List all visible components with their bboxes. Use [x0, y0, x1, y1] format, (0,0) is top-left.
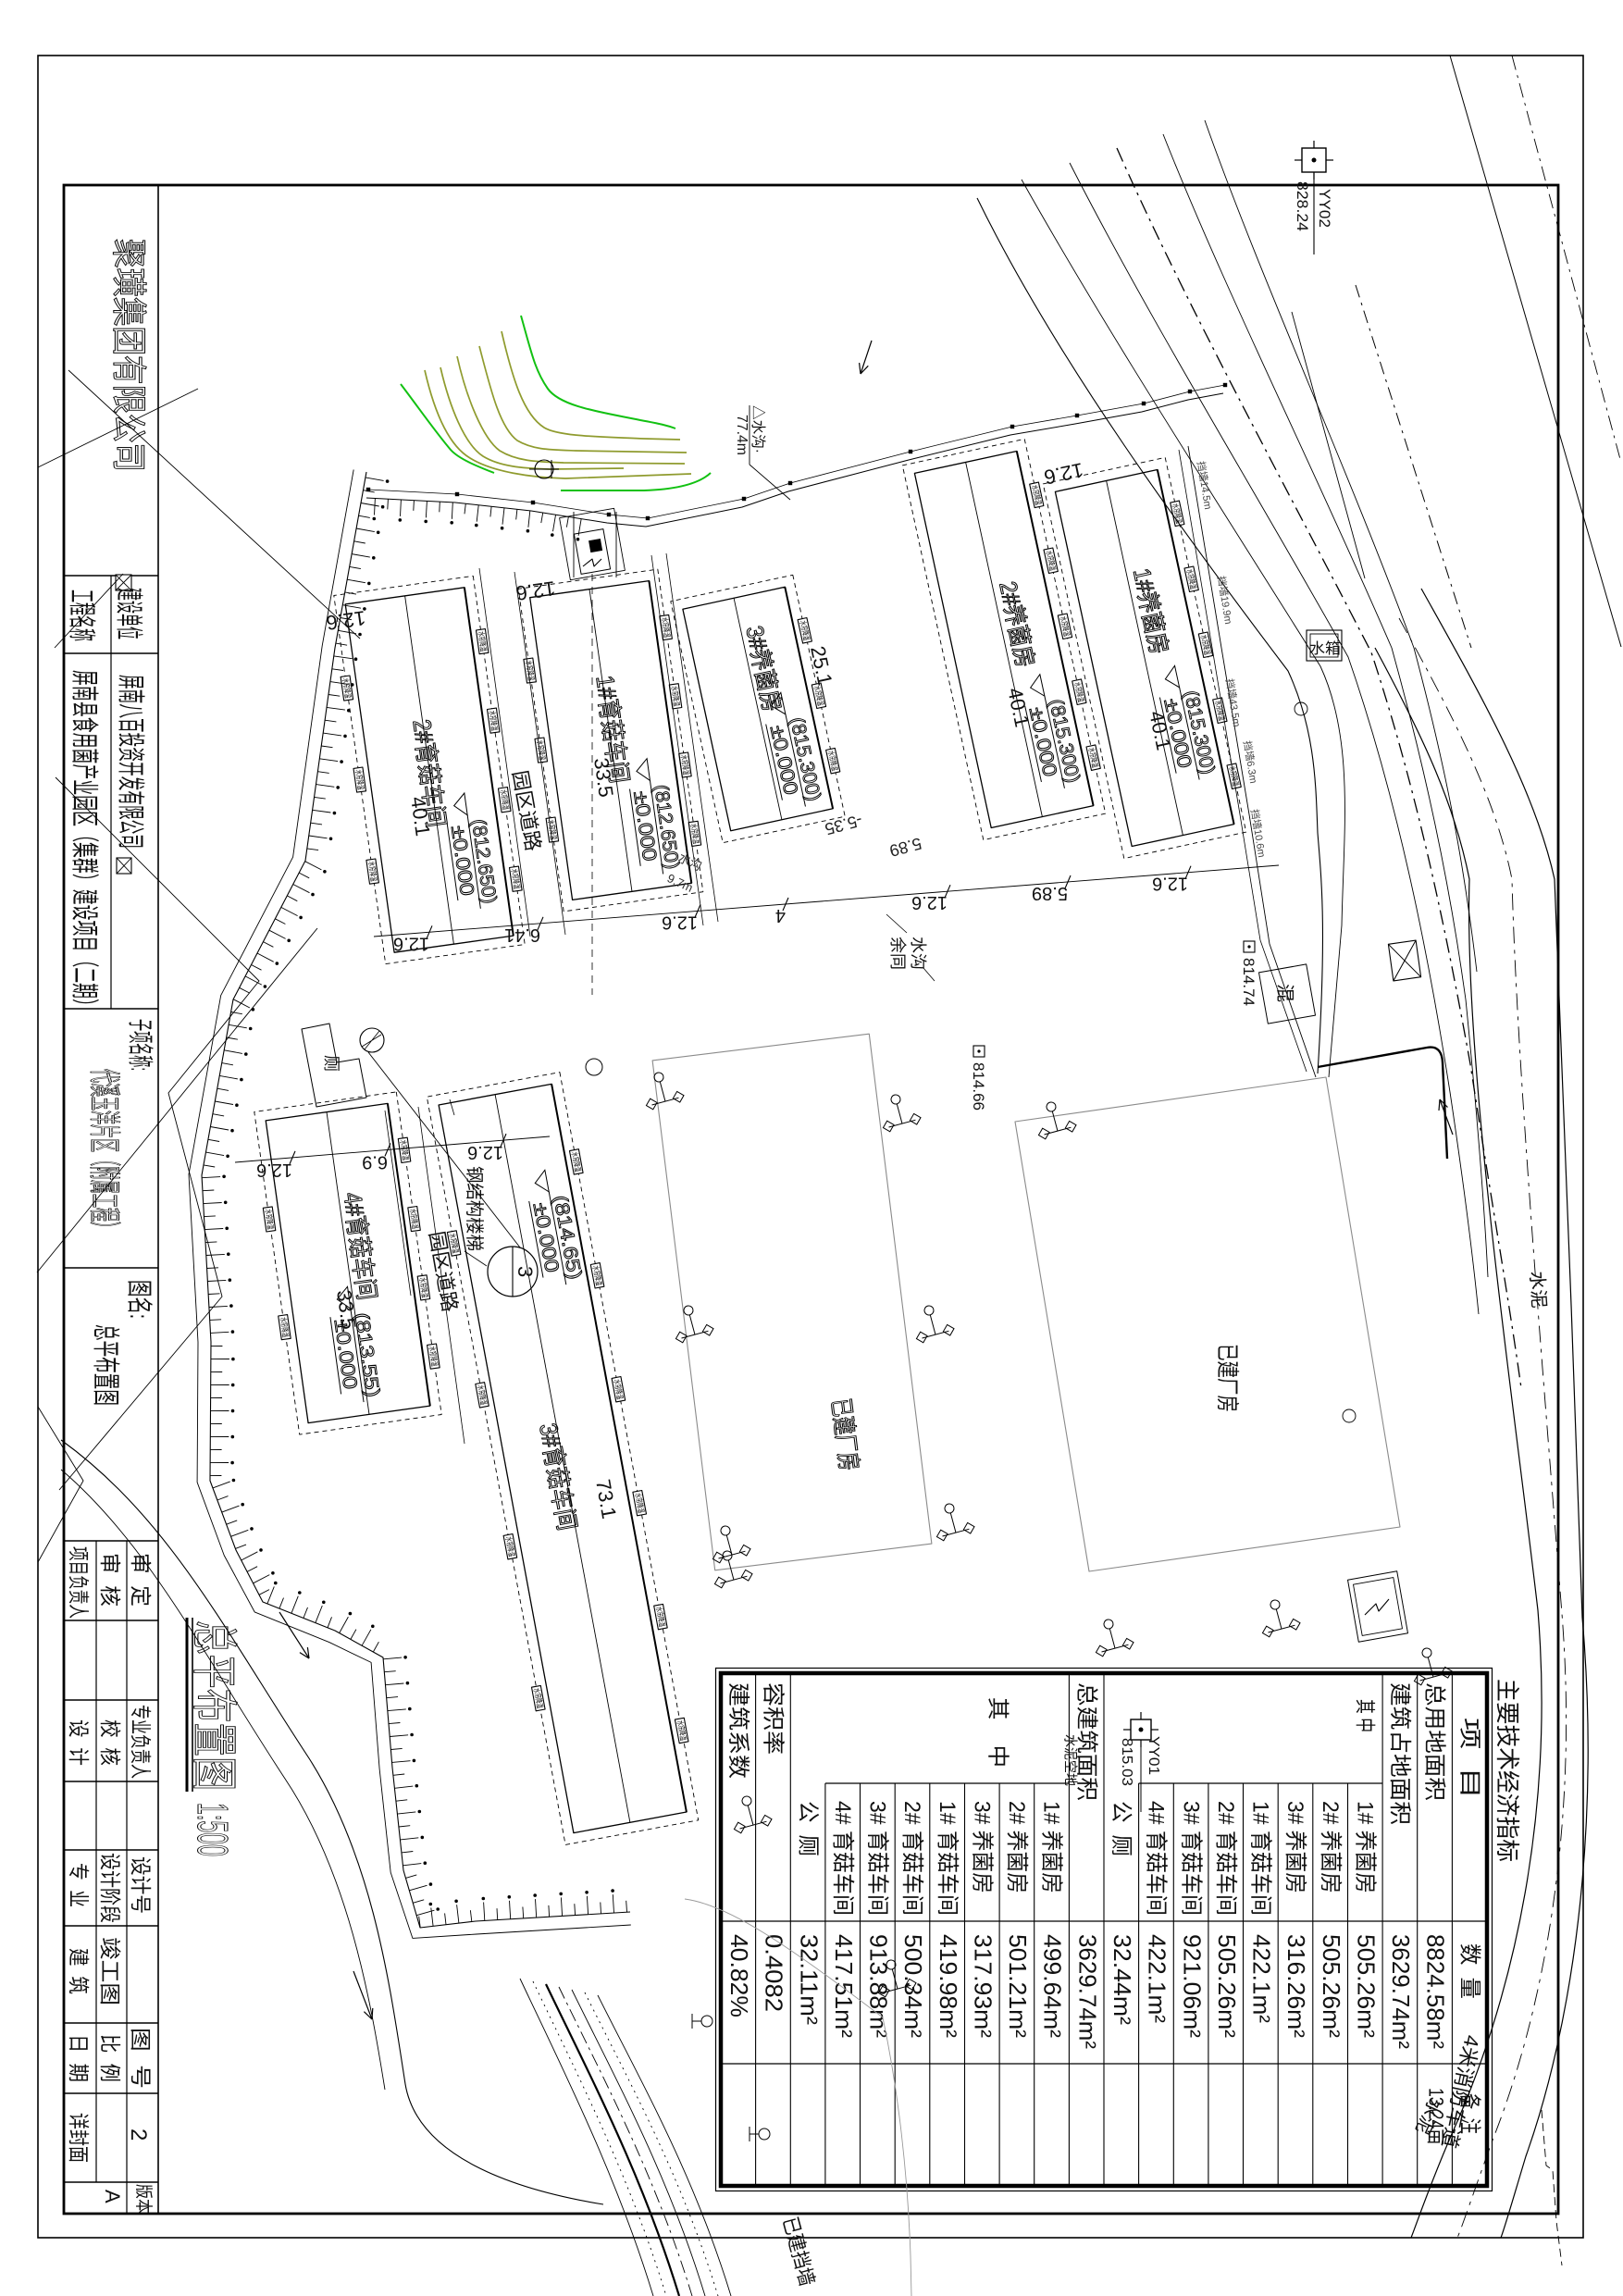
svg-text:水泥空地: 水泥空地	[1062, 1734, 1078, 1786]
svg-text:水帘降温: 水帘降温	[504, 1536, 517, 1558]
svg-text:挡墙19.9m: 挡墙19.9m	[1215, 575, 1235, 625]
svg-text:水帘降温: 水帘降温	[535, 739, 547, 761]
svg-text:水帘降温: 水帘降温	[418, 1277, 430, 1298]
svg-text:815.03: 815.03	[1119, 1738, 1134, 1786]
svg-text:73.1: 73.1	[591, 1478, 621, 1521]
svg-text:3#育菇车间: 3#育菇车间	[534, 1421, 581, 1533]
svg-text:水箱: 水箱	[1309, 640, 1341, 657]
svg-text:40.1: 40.1	[406, 795, 435, 838]
svg-text:水帘降温: 水帘降温	[1227, 765, 1240, 788]
svg-text:项 目: 项 目	[1456, 1718, 1481, 1799]
svg-text:814.74: 814.74	[1240, 958, 1258, 1006]
svg-text:屏南八百投资开发有限公司: 屏南八百投资开发有限公司	[115, 675, 145, 849]
svg-text:500.34m²: 500.34m²	[899, 1934, 927, 2038]
svg-text:-5.35: -5.35	[823, 811, 864, 838]
svg-text:水帘降温: 水帘降温	[826, 750, 839, 772]
svg-text:33.5: 33.5	[589, 756, 618, 799]
svg-text:12.6: 12.6	[393, 933, 429, 953]
svg-text:水泥: 水泥	[1526, 1271, 1550, 1309]
svg-text:设 计: 设 计	[67, 1719, 91, 1766]
svg-text:水帘降温: 水帘降温	[633, 1492, 646, 1514]
svg-text:总平布置图: 总平布置图	[90, 1324, 120, 1406]
svg-text:1:500: 1:500	[189, 1803, 237, 1856]
svg-text:1# 养菌房: 1# 养菌房	[1353, 1801, 1378, 1893]
svg-text:505.26m²: 505.26m²	[1353, 1934, 1381, 2038]
svg-text:水帘降温: 水帘降温	[546, 819, 558, 840]
svg-text:422.1m²: 422.1m²	[1144, 1934, 1171, 2023]
svg-text:工程名称: 工程名称	[66, 590, 96, 641]
svg-text:园区道路: 园区道路	[508, 769, 545, 853]
svg-text:3# 育菇车间: 3# 育菇车间	[865, 1801, 890, 1916]
svg-text:1# 育菇车间: 1# 育菇车间	[935, 1801, 960, 1916]
svg-text:501.21m²: 501.21m²	[1004, 1934, 1032, 2038]
svg-text:图 号: 图 号	[129, 2028, 153, 2089]
svg-text:设计阶段: 设计阶段	[98, 1853, 122, 1923]
svg-text:竣工图: 竣工图	[98, 1937, 122, 2005]
svg-text:水帘降温: 水帘降温	[1030, 484, 1043, 506]
svg-text:水帘降温: 水帘降温	[399, 1139, 411, 1160]
svg-text:比 例: 比 例	[98, 2034, 122, 2082]
svg-text:2# 养菌房: 2# 养菌房	[1318, 1801, 1343, 1893]
svg-text:12.6: 12.6	[514, 577, 557, 605]
svg-text:审 核: 审 核	[98, 1553, 122, 1607]
svg-text:3: 3	[514, 1266, 537, 1277]
svg-text:公 厕: 公 厕	[795, 1801, 820, 1856]
svg-text:32.11m²: 32.11m²	[795, 1934, 823, 2025]
svg-text:建 筑: 建 筑	[67, 1948, 91, 1994]
svg-text:40.1: 40.1	[1003, 686, 1034, 729]
svg-text:水帘降温: 水帘降温	[675, 1719, 688, 1742]
svg-text:水帘降温: 水帘降温	[408, 1208, 420, 1229]
svg-text:水帘降温: 水帘降温	[612, 1379, 625, 1401]
svg-text:12.6: 12.6	[467, 1142, 503, 1162]
svg-text:屏南县食用菌产业园区（集群）建设项目（二期）: 屏南县食用菌产业园区（集群）建设项目（二期）	[68, 670, 99, 1014]
svg-text:专业负责人: 专业负责人	[129, 1705, 153, 1779]
svg-text:水帘降温: 水帘降温	[477, 631, 489, 652]
svg-text:水帘降温: 水帘降温	[1044, 550, 1057, 572]
svg-text:828.24: 828.24	[1294, 181, 1311, 231]
svg-text:水帘降温: 水帘降温	[264, 1209, 276, 1230]
svg-text:总用地面积: 总用地面积	[1422, 1682, 1447, 1801]
svg-text:4#育菇车间: 4#育菇车间	[339, 1191, 381, 1302]
svg-text:水帘降温: 水帘降温	[591, 1265, 604, 1287]
svg-text:水帘降温: 水帘降温	[1184, 568, 1197, 590]
svg-text:4# 育菇车间: 4# 育菇车间	[830, 1801, 855, 1916]
svg-text:4: 4	[775, 905, 786, 925]
svg-text:版本: 版本	[133, 2184, 154, 2214]
svg-text:12.6: 12.6	[256, 1160, 292, 1180]
svg-text:40.82%: 40.82%	[725, 1934, 753, 2017]
svg-text:水帘降温: 水帘降温	[524, 660, 536, 681]
svg-text:水帘降温: 水帘降温	[812, 685, 825, 707]
svg-text:25.1: 25.1	[806, 644, 836, 688]
svg-text:主要技术经济指标: 主要技术经济指标	[1493, 1679, 1521, 1862]
svg-text:图名:: 图名:	[125, 1280, 154, 1319]
svg-text:6.41: 6.41	[504, 925, 540, 945]
svg-text:422.1m²: 422.1m²	[1248, 1934, 1276, 2023]
svg-text:12.6: 12.6	[1152, 874, 1188, 894]
svg-text:417.51m²: 417.51m²	[830, 1934, 858, 2038]
svg-text:水帘降温: 水帘降温	[532, 1687, 545, 1709]
svg-text:余同: 余同	[888, 937, 907, 970]
svg-text:其 中: 其 中	[985, 1697, 1010, 1768]
svg-text:其 中: 其 中	[1354, 1699, 1377, 1732]
svg-text:3# 养菌房: 3# 养菌房	[970, 1801, 995, 1893]
svg-text:水帘降温: 水帘降温	[279, 1317, 291, 1338]
svg-text:数 量: 数 量	[1456, 1943, 1481, 1999]
svg-text:厕: 厕	[322, 1055, 341, 1072]
svg-text:77.4m: 77.4m	[734, 415, 750, 455]
svg-text:921.06m²: 921.06m²	[1178, 1934, 1206, 2038]
svg-text:水帘降温: 水帘降温	[510, 868, 522, 889]
svg-text:8824.58m²: 8824.58m²	[1422, 1934, 1450, 2049]
svg-text:316.26m²: 316.26m²	[1282, 1934, 1310, 2038]
svg-text:32.44m²: 32.44m²	[1109, 1934, 1136, 2025]
svg-text:混: 混	[1274, 984, 1295, 1002]
svg-text:1# 养菌房: 1# 养菌房	[1039, 1801, 1064, 1893]
svg-text:水帘降温: 水帘降温	[1213, 700, 1226, 722]
svg-text:505.26m²: 505.26m²	[1213, 1934, 1241, 2038]
svg-text:公 厕: 公 厕	[1109, 1801, 1134, 1856]
svg-text:水帘降温: 水帘降温	[654, 1606, 667, 1628]
svg-text:水帘降温: 水帘降温	[1072, 681, 1085, 703]
svg-text:水帘降温: 水帘降温	[476, 1384, 489, 1407]
svg-text:水帘降温: 水帘降温	[1086, 747, 1099, 769]
svg-text:1# 育菇车间: 1# 育菇车间	[1248, 1801, 1273, 1916]
svg-text:3# 养菌房: 3# 养菌房	[1282, 1801, 1307, 1893]
svg-text:水帘降温: 水帘降温	[353, 769, 365, 790]
svg-text:审 定: 审 定	[129, 1553, 153, 1607]
svg-text:YY01: YY01	[1146, 1736, 1161, 1775]
svg-text:12.6: 12.6	[1042, 458, 1085, 489]
svg-text:2# 育菇车间: 2# 育菇车间	[899, 1801, 924, 1916]
svg-text:A: A	[101, 2190, 124, 2203]
svg-text:已建厂房: 已建厂房	[1214, 1344, 1240, 1412]
svg-text:建筑占地面积: 建筑占地面积	[1387, 1682, 1412, 1825]
svg-text:建设单位: 建设单位	[113, 588, 143, 639]
svg-text:水帘降温: 水帘降温	[799, 620, 811, 642]
svg-text:317.93m²: 317.93m²	[970, 1934, 997, 2038]
svg-text:已建挡墙: 已建挡墙	[778, 2215, 819, 2289]
svg-text:YY02: YY02	[1316, 189, 1333, 228]
svg-text:水帘降温: 水帘降温	[341, 677, 353, 699]
svg-text:水沟: 水沟	[909, 937, 927, 970]
svg-text:913.88m²: 913.88m²	[865, 1934, 893, 2038]
svg-text:2# 养菌房: 2# 养菌房	[1004, 1801, 1029, 1893]
svg-text:2: 2	[126, 2128, 151, 2141]
svg-text:4# 育菇车间: 4# 育菇车间	[1144, 1801, 1169, 1916]
svg-text:详封面: 详封面	[67, 2113, 91, 2163]
svg-text:3629.74m²: 3629.74m²	[1073, 1934, 1101, 2049]
svg-text:505.26m²: 505.26m²	[1318, 1934, 1345, 2038]
svg-text:水帘降温: 水帘降温	[427, 1346, 440, 1367]
svg-text:419.98m²: 419.98m²	[935, 1934, 962, 2038]
svg-text:5.89: 5.89	[887, 834, 923, 860]
svg-text:水帘降温: 水帘降温	[366, 861, 378, 882]
svg-text:3# 育菇车间: 3# 育菇车间	[1178, 1801, 1203, 1916]
svg-text:专 业: 专 业	[67, 1863, 91, 1907]
svg-text:总平布置图: 总平布置图	[188, 1620, 240, 1791]
svg-text:5.89: 5.89	[1032, 883, 1068, 903]
svg-text:挡墙6.3m: 挡墙6.3m	[1241, 739, 1260, 784]
svg-text:建筑系数: 建筑系数	[725, 1682, 750, 1779]
svg-text:日 期: 日 期	[67, 2034, 91, 2082]
svg-text:水帘降温: 水帘降温	[1059, 615, 1072, 638]
svg-text:水帘降温: 水帘降温	[570, 1151, 583, 1173]
svg-text:水帘降温: 水帘降温	[488, 710, 500, 731]
svg-text:2# 育菇车间: 2# 育菇车间	[1213, 1801, 1238, 1916]
svg-text:499.64m²: 499.64m²	[1039, 1934, 1067, 2038]
svg-text:12.6: 12.6	[325, 606, 367, 635]
svg-text:子项名称:: 子项名称:	[126, 1019, 155, 1071]
svg-text:△水沟·: △水沟·	[750, 405, 766, 453]
svg-text:水帘降温: 水帘降温	[499, 789, 511, 811]
svg-text:814.66: 814.66	[970, 1062, 987, 1111]
svg-text:钢结构楼梯: 钢结构楼梯	[464, 1166, 485, 1251]
svg-text:已建厂房: 已建厂房	[826, 1397, 862, 1472]
svg-text:项目负责人: 项目负责人	[67, 1546, 91, 1619]
svg-text:3#养菌房: 3#养菌房	[740, 624, 786, 714]
svg-text:校 核: 校 核	[98, 1719, 122, 1766]
svg-text:12.6: 12.6	[911, 892, 948, 912]
svg-text:6.9: 6.9	[362, 1151, 388, 1172]
svg-text:3629.74m²: 3629.74m²	[1387, 1934, 1415, 2049]
svg-text:挡墙10.6m: 挡墙10.6m	[1248, 808, 1269, 858]
svg-text:代溪玉洋片区（附属工程）: 代溪玉洋片区（附属工程）	[86, 1069, 121, 1235]
svg-text:12.6: 12.6	[662, 912, 698, 932]
svg-text:容积率: 容积率	[761, 1682, 786, 1755]
svg-text:设计号: 设计号	[129, 1856, 153, 1914]
